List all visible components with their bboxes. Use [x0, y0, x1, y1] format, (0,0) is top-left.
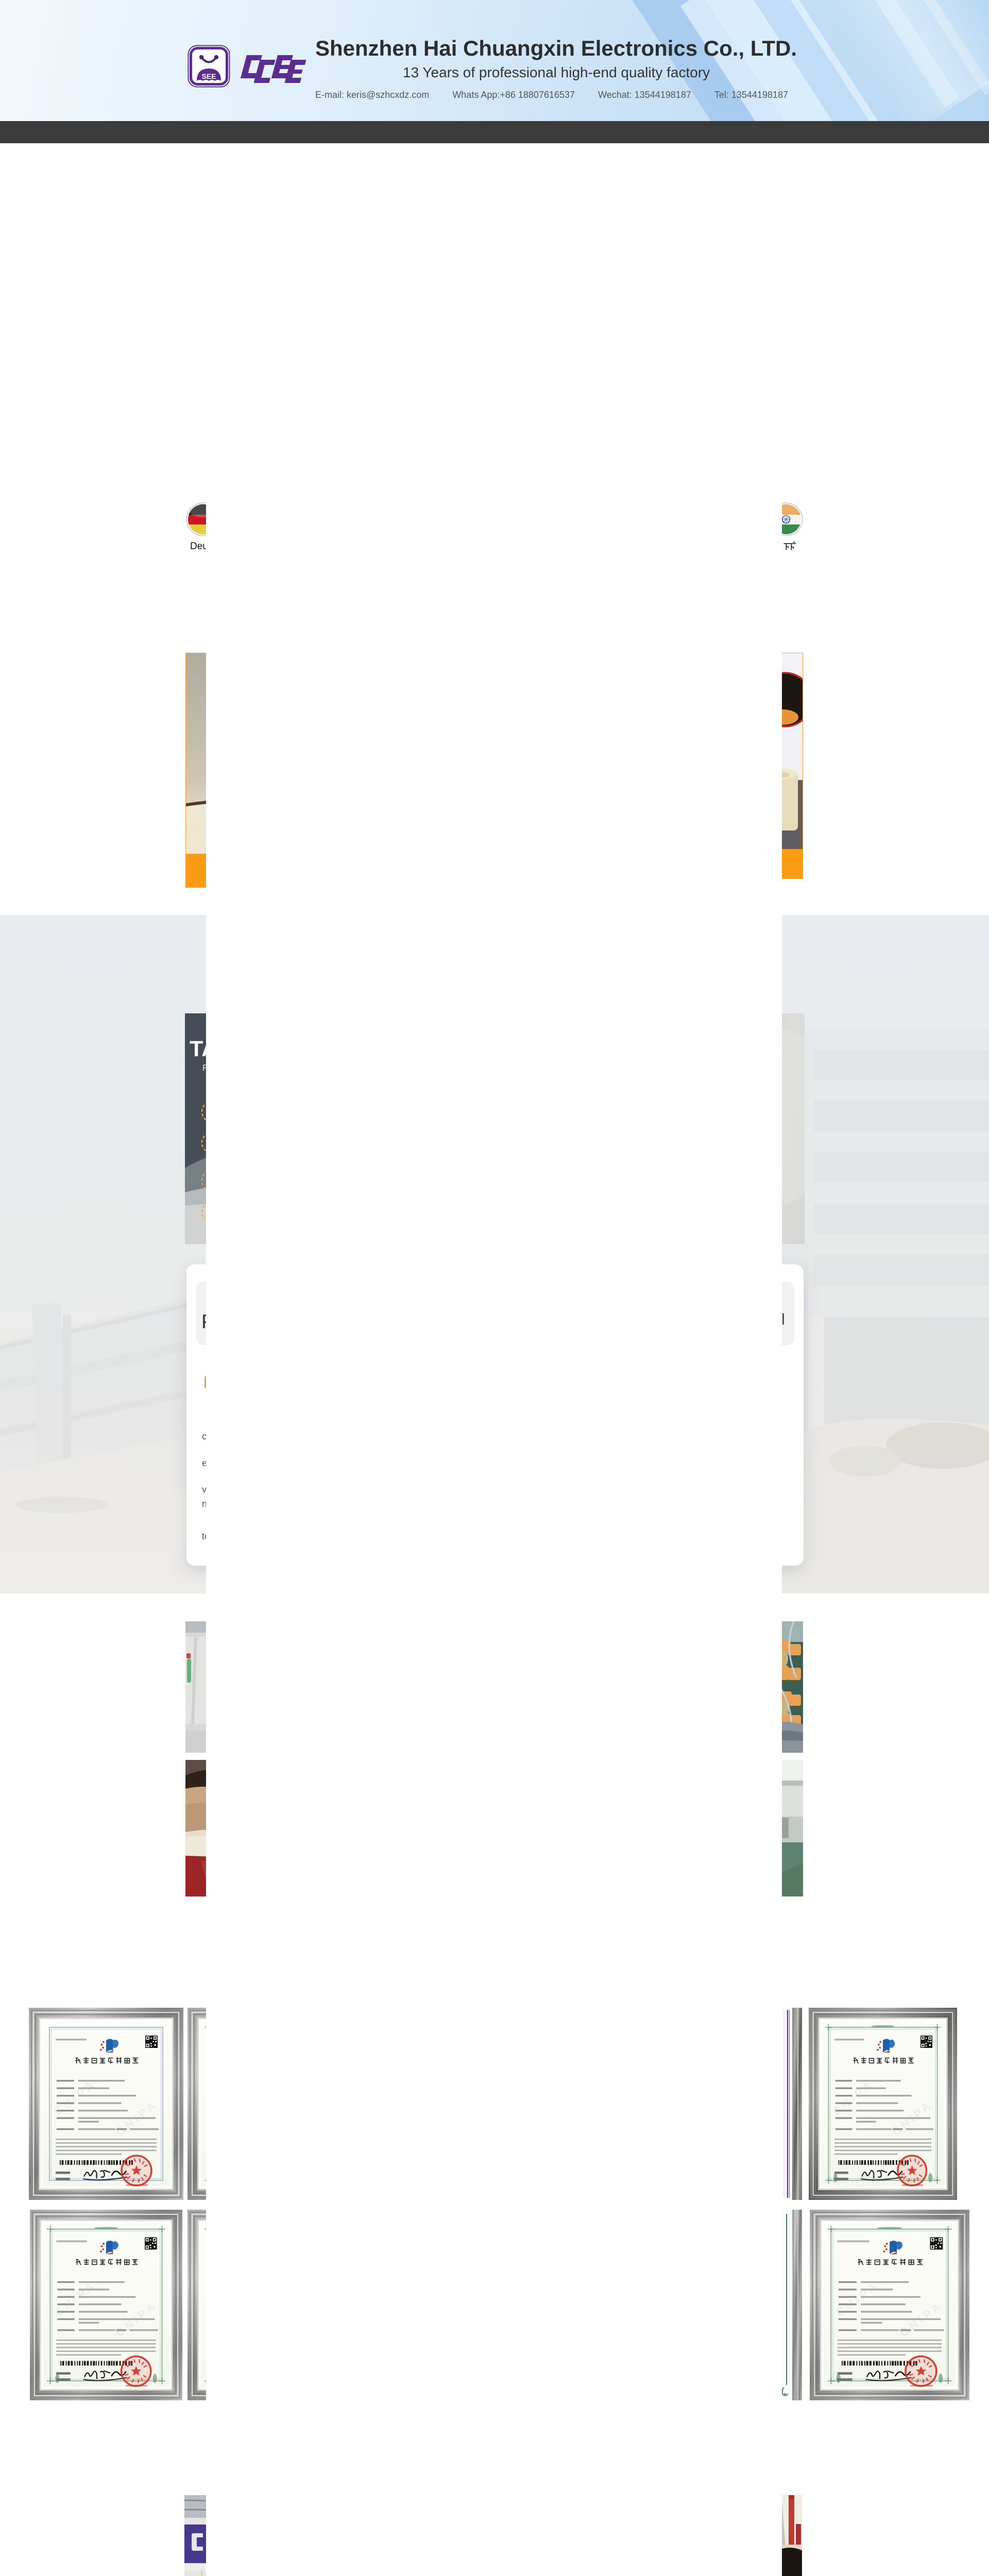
svg-text:SEE: SEE	[201, 72, 216, 80]
